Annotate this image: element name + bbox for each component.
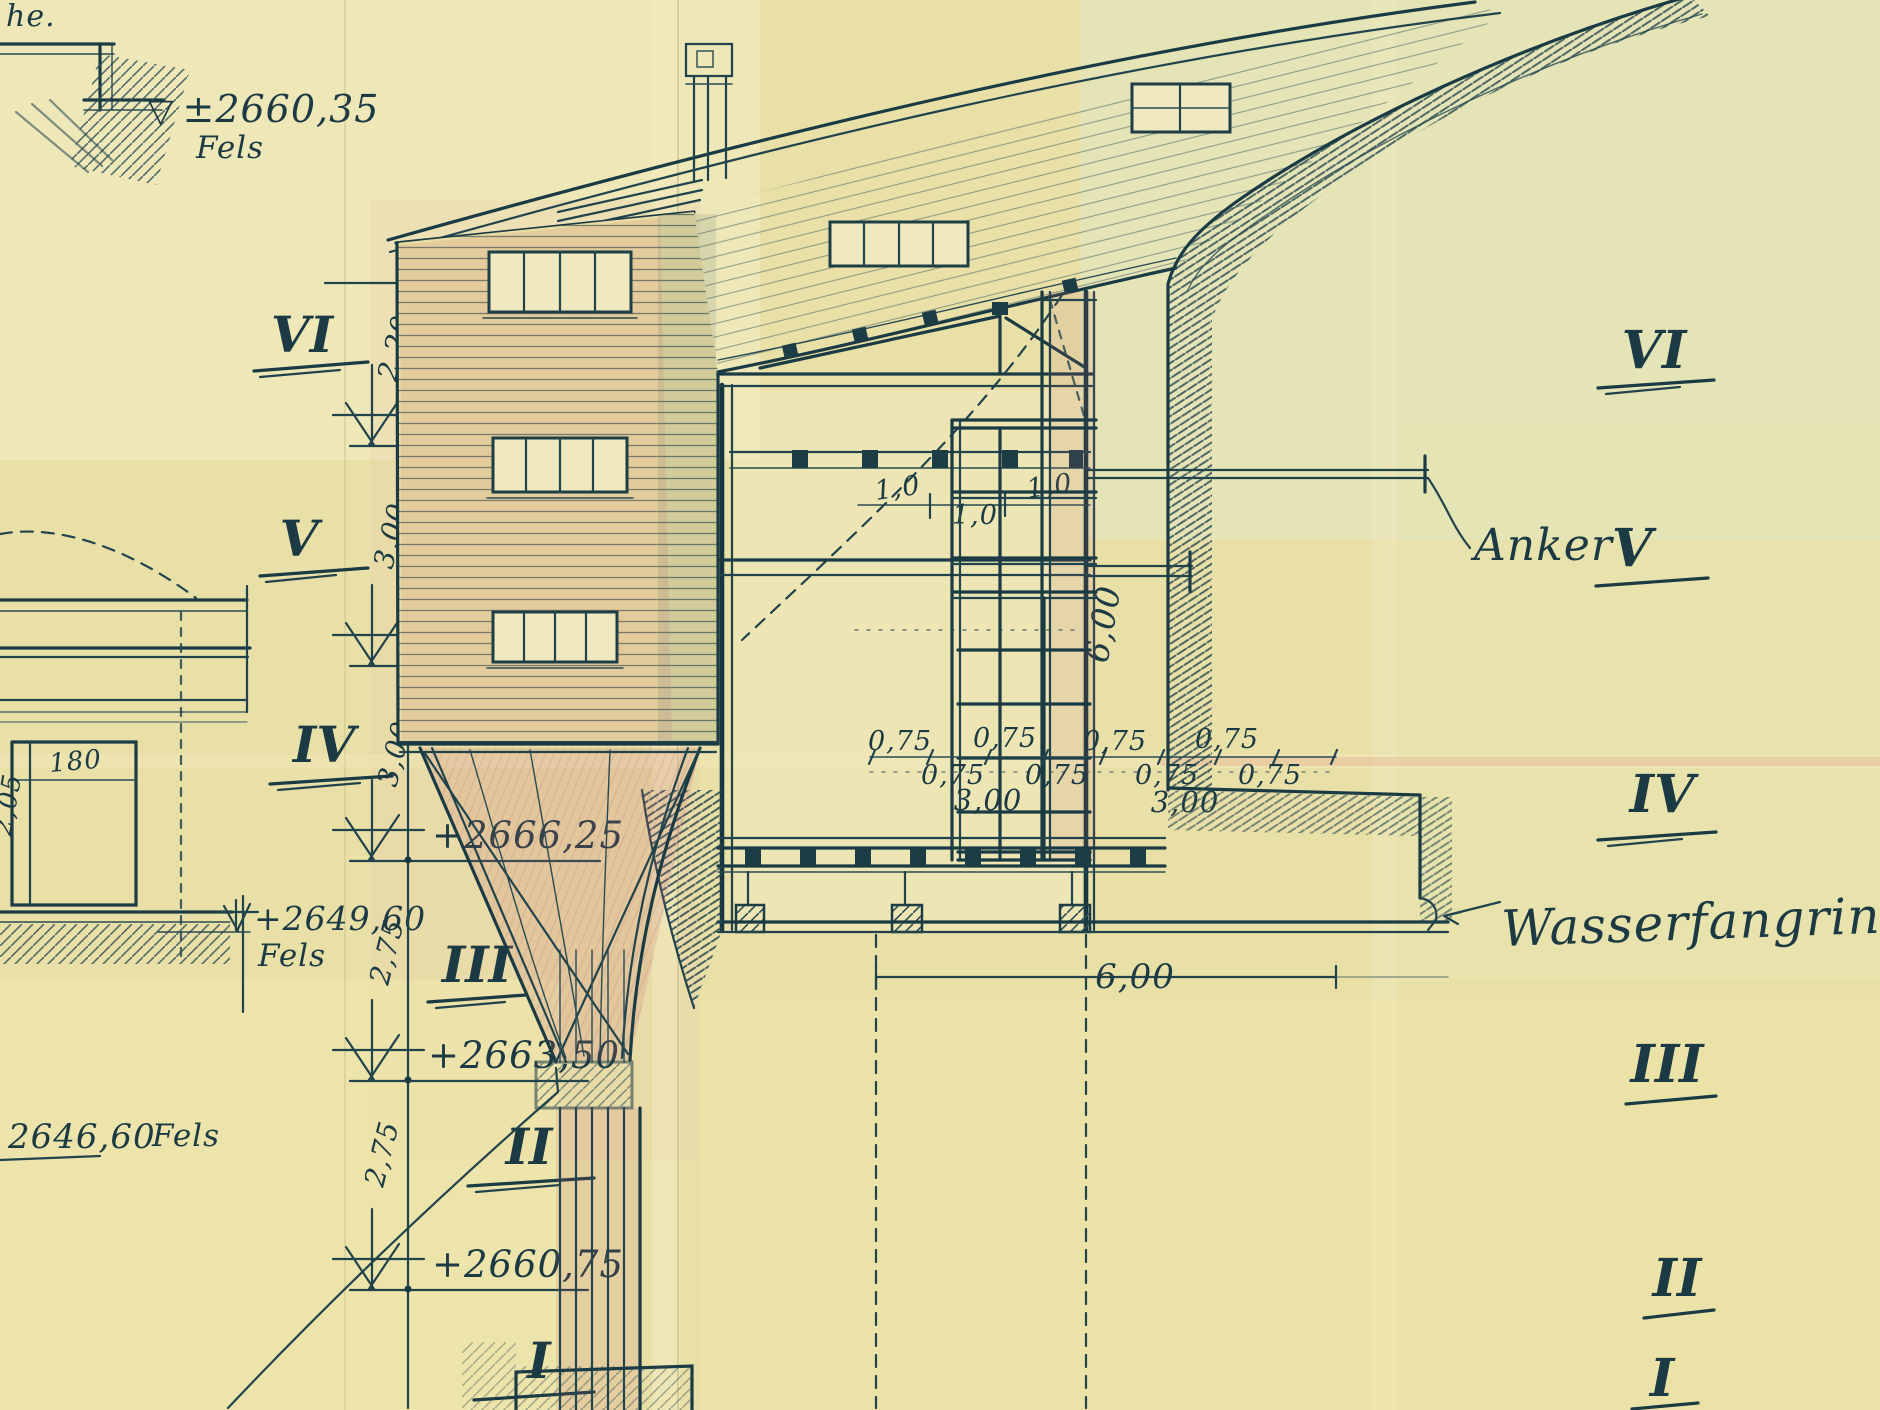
roof-bay-dim: 1,0 — [873, 470, 923, 507]
wall-bay-dim: 0,75 — [973, 723, 1037, 754]
story-numeral: V — [280, 509, 324, 568]
anker-label: Anker — [1470, 520, 1615, 571]
wall-bay-dim: 0,75 — [1083, 726, 1147, 757]
ground-hatch — [0, 924, 230, 964]
drawing-sheet: he. ▽ ±2660,35 Fels 180 2,05 +2649,60 Fe… — [0, 0, 1880, 1410]
story-numeral: III — [440, 935, 514, 994]
story-numeral: IV — [291, 715, 360, 774]
wall-total-dim: 3,00 — [954, 783, 1023, 817]
datum-upper-symbol: ▽ — [148, 91, 174, 130]
corner-cut-text: he. — [6, 0, 56, 34]
story-numeral: VI — [1622, 320, 1688, 381]
roof-top-window — [1132, 84, 1230, 132]
datum-lower-value: 2646,60 — [7, 1117, 156, 1157]
datum-upper-rock-label: Fels — [195, 130, 264, 166]
base-width-dim: 6,00 — [1095, 957, 1175, 997]
story-numeral: IV — [1628, 764, 1699, 825]
story-numeral: II — [504, 1117, 554, 1176]
story-numeral: VI — [271, 305, 335, 364]
roof-bay-dim: 1,0 — [952, 500, 998, 531]
window-middle — [487, 438, 633, 498]
wall-bay-dim: 0,75 — [1025, 760, 1089, 791]
story-numeral: I — [1648, 1348, 1676, 1409]
wall-bay-dim: 0,75 — [1238, 760, 1302, 791]
datum-mid-rock-label: Fels — [257, 938, 326, 974]
story-numeral: III — [1629, 1034, 1706, 1095]
window-top — [483, 252, 637, 318]
window-lower — [487, 612, 623, 668]
datum-upper-value: ±2660,35 — [182, 87, 379, 131]
roof-dormer-window — [830, 222, 968, 266]
wall-bay-dim: 0,75 — [868, 726, 932, 757]
story-numeral: II — [1651, 1248, 1703, 1309]
story-numeral: V — [1612, 518, 1657, 579]
svg-text:▽ ±2660,35: ▽ ±2660,35 — [148, 87, 379, 131]
datum-lower: 2646,60 Fels — [0, 1117, 220, 1160]
door-width-dim: 180 — [48, 744, 103, 778]
datum-lower-rock-label: Fels — [151, 1118, 220, 1154]
